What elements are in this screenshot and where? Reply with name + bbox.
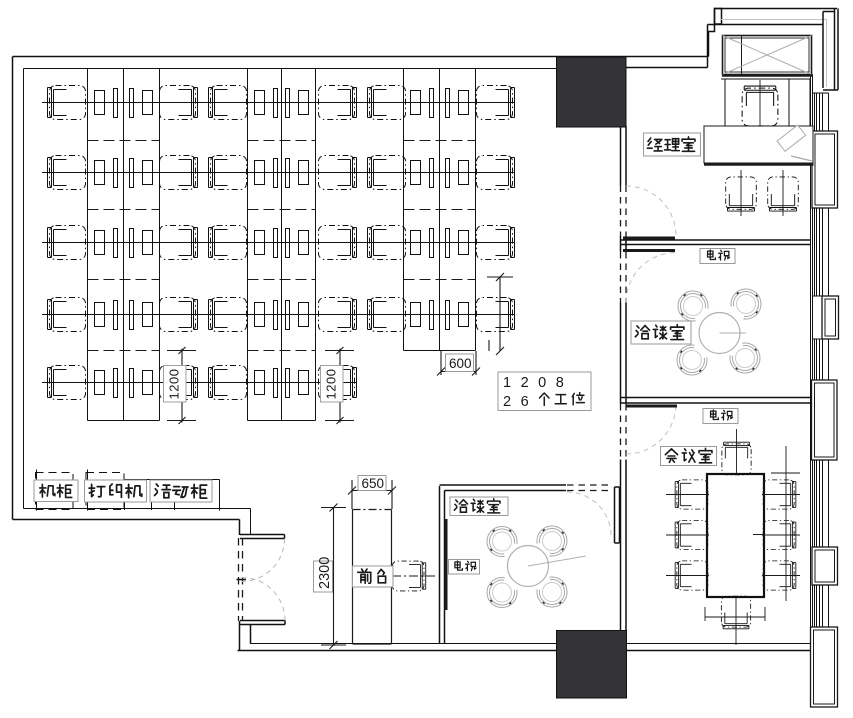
svg-text:26: 26 [503,394,538,410]
svg-text:2300: 2300 [317,557,333,589]
svg-text:600: 600 [449,356,472,371]
svg-text:650: 650 [362,476,385,491]
svg-text:1200: 1200 [324,369,339,400]
svg-text:1200: 1200 [167,369,182,400]
svg-text:1208: 1208 [503,375,573,391]
